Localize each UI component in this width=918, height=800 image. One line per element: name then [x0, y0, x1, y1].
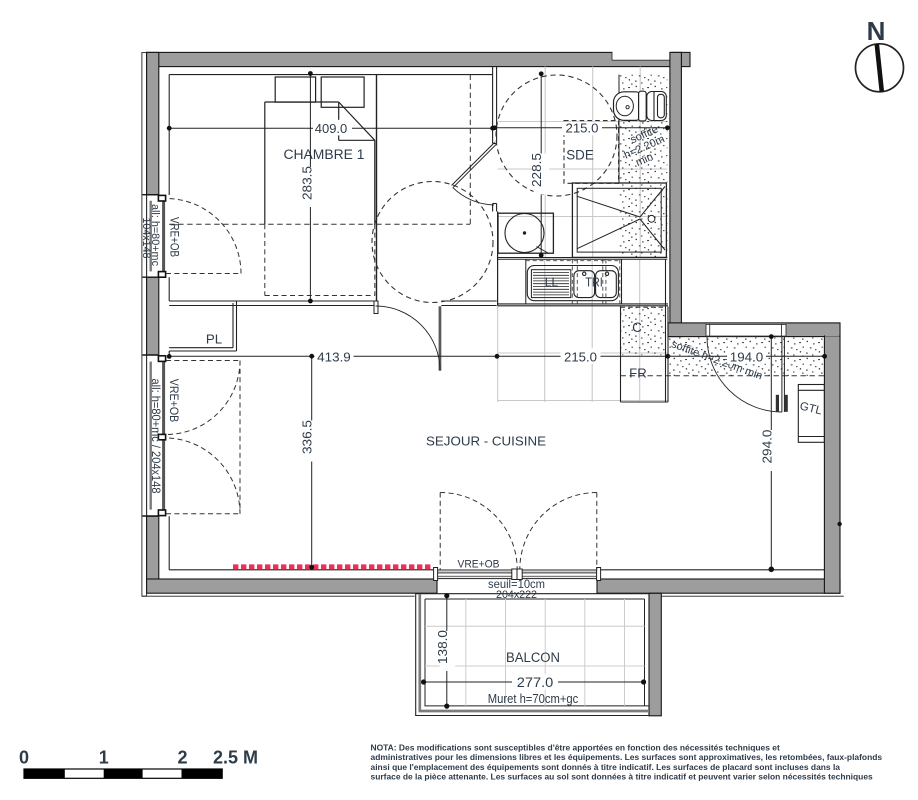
svg-text:277.0: 277.0 [517, 675, 554, 690]
svg-text:NOTA: Des modifications sont s: NOTA: Des modifications sont susceptible… [371, 743, 780, 753]
svg-text:surface de la pièce attenante.: surface de la pièce attenante. Les surfa… [371, 772, 874, 782]
svg-text:N: N [867, 16, 886, 46]
svg-text:413.9: 413.9 [317, 349, 351, 364]
svg-text:283.5: 283.5 [299, 166, 314, 200]
svg-text:VRE+OB: VRE+OB [458, 558, 500, 570]
svg-text:PL: PL [206, 332, 222, 347]
svg-text:all: h=80+mc / 204x148: all: h=80+mc / 204x148 [149, 379, 163, 494]
svg-text:194.0: 194.0 [730, 350, 764, 365]
svg-text:VRE+OB: VRE+OB [168, 217, 180, 257]
svg-text:BALCON: BALCON [506, 650, 560, 665]
svg-text:215.0: 215.0 [564, 349, 597, 364]
svg-text:228.5: 228.5 [529, 153, 544, 187]
svg-text:2.5 M: 2.5 M [213, 748, 258, 768]
svg-text:ainsi que l'emplacement des éq: ainsi que l'emplacement des équipements … [371, 762, 841, 772]
svg-text:CHAMBRE 1: CHAMBRE 1 [284, 147, 365, 162]
svg-text:2: 2 [177, 748, 187, 768]
svg-text:Muret h=70cm+gc: Muret h=70cm+gc [488, 692, 579, 706]
svg-text:409.0: 409.0 [315, 121, 348, 136]
svg-text:SDE: SDE [566, 148, 594, 163]
svg-text:294.0: 294.0 [759, 430, 774, 464]
svg-text:SEJOUR - CUISINE: SEJOUR - CUISINE [426, 433, 546, 448]
svg-text:TRI: TRI [585, 274, 603, 289]
svg-text:LL: LL [545, 274, 559, 289]
svg-text:VRE+OB: VRE+OB [167, 379, 179, 423]
svg-text:FR: FR [629, 366, 647, 381]
svg-text:1: 1 [99, 748, 109, 768]
svg-text:administratives pour les dimen: administratives pour les dimensions libr… [371, 752, 883, 762]
svg-text:336.5: 336.5 [300, 420, 315, 454]
svg-text:0: 0 [19, 748, 29, 768]
svg-text:all: h=80+mc: all: h=80+mc [149, 204, 161, 266]
svg-text:138.0: 138.0 [435, 630, 450, 664]
svg-text:215.0: 215.0 [566, 121, 599, 136]
svg-text:C: C [632, 320, 642, 335]
